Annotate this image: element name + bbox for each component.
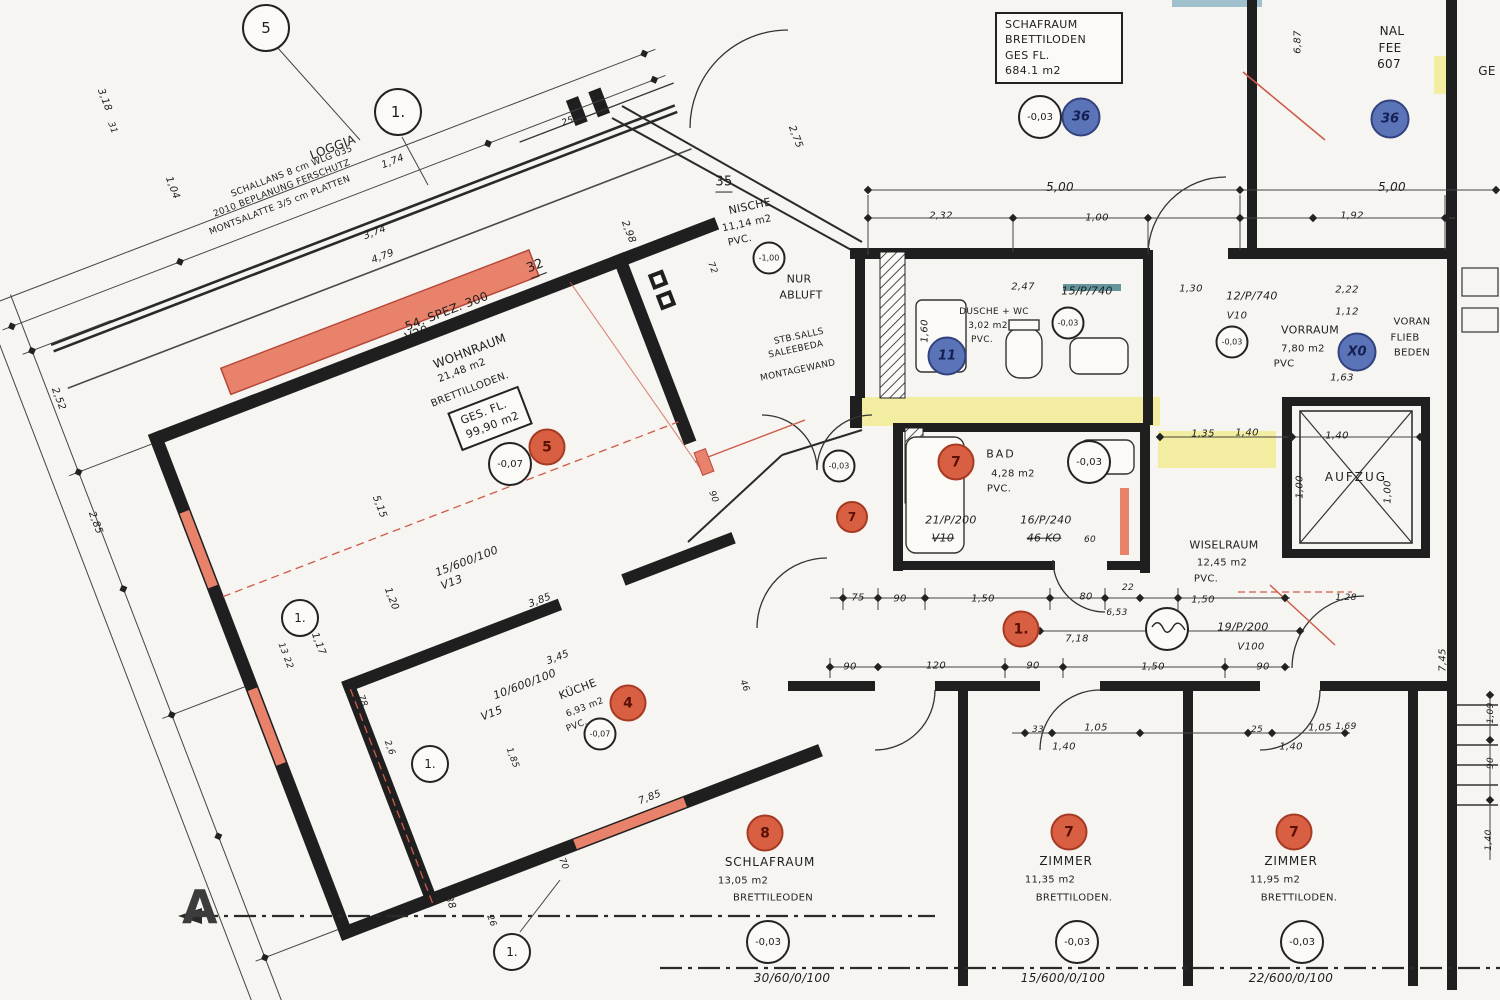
dim-top-1: 2,32 [929,210,952,222]
door-19-v100: V100 [1237,641,1264,653]
dim-1-12: 1,12 [1335,306,1358,318]
dim-lw-2: 1,40 [1052,741,1075,753]
dim-2-22: 2,22 [1335,284,1358,296]
dim-ct-0: 75 [851,592,864,604]
badge-red-8: 8 [747,815,784,852]
dim-60: 60 [1084,535,1096,545]
dim-lw-1: 1,05 [1084,722,1107,734]
dim-top-3: 1,92 [1340,210,1363,222]
room1-area: 13,05 m2 [718,875,768,887]
room1-name: SCHLAFRAUM [725,856,815,870]
dim-1-28: 1,28 [1335,593,1356,603]
voran-l3: BEDEN [1394,347,1430,359]
badge-red-7b: 7 [1051,814,1088,851]
door-21-v10: V10 [932,533,954,546]
hatch-pier-1 [880,252,905,398]
aufzug-dim-top: 1,40 [1325,430,1348,442]
door-21-p-200: 21/P/200 [925,515,976,528]
dim-ct-3: 80 [1079,591,1092,603]
room1-floor: BRETTILEODEN [733,892,813,904]
door-15-p-740: 15/P/740 [1061,286,1112,299]
schafraum-box-l3: GES FL. [1005,48,1113,63]
dim-lw-4: 1,40 [1279,741,1302,753]
grid-bubble-1d: 1. [493,933,531,971]
scribble-note-circle [1146,608,1188,650]
dim-6-53: 6,53 [1106,608,1127,618]
dim-cb-1: 120 [926,660,946,672]
vorraum-name: VORRAUM [1281,325,1339,338]
dim-ct-1: 90 [893,593,906,605]
door-19-p-200: 19/P/200 [1217,622,1268,635]
door-16-46ko: 46 KO [1027,533,1062,546]
dusche-l1: DUSCHE + WC [959,307,1029,317]
dim-ct-5: 1,50 [1191,594,1214,606]
bad-floor: PVC. [987,483,1011,495]
schafraum-box: SCHAFRAUM BRETTILODEN GES FL. 684.1 m2 [995,12,1123,84]
axis-room1: 30/60/0/100 [754,972,831,986]
schafraum-box-l4: 684.1 m2 [1005,63,1113,78]
dim-top-0: 5,00 [1046,181,1074,195]
axis-room3: 22/600/0/100 [1249,972,1333,986]
vorraum-floor: PVC [1274,358,1295,370]
elevation-schafraum: -0,03 [1018,95,1062,139]
dim-lw-0: 33 [1032,725,1044,735]
door-12-v10: V10 [1227,310,1247,322]
elevation-room2: -0,03 [1055,920,1099,964]
grid-bubble-5: 5 [242,4,290,52]
vorraum-area: 7,80 m2 [1281,343,1325,355]
elevation-room3: -0,03 [1280,920,1324,964]
topright-fragment: GE [1478,65,1495,79]
room3-floor: BRETTILODEN. [1261,892,1337,904]
room2-name: ZIMMER [1039,855,1092,869]
dim-cb-4: 90 [1256,661,1269,673]
dim-7-18: 7,18 [1065,633,1088,645]
elevation-kueche: -0,07 [584,718,617,751]
bad-area: 4,28 m2 [991,468,1035,480]
dim-top-4: 5,00 [1378,181,1406,195]
dim-cb-0: 90 [843,661,856,673]
window-number-35: 35 [715,176,732,193]
badge-red-7a: 7 [836,501,868,533]
grid-bubble-1c: 1. [411,745,449,783]
dim-2-47: 2,47 [1011,281,1034,293]
right-fixtures [1462,268,1498,332]
badge-blue-x0: X0 [1338,333,1377,372]
topright-l2: FEE [1379,42,1402,56]
dim-c2-0: 1,35 [1191,428,1214,440]
wisel-name: WISELRAUM [1189,540,1258,553]
badge-blue-11: 11 [928,337,967,376]
dim-cb-2: 90 [1026,660,1039,672]
dim-1-60: 1,60 [919,319,931,342]
badge-red-1: 1. [1003,611,1040,648]
room2-floor: BRETTILODEN. [1036,892,1112,904]
dim-c2-1: 1,40 [1235,427,1258,439]
elevation-corr: -0,03 [823,450,856,483]
topright-l1: NAL [1380,25,1405,39]
aufzug-name: AUFZUG [1325,471,1387,485]
badge-red-7-bad: 7 [938,444,975,481]
room2-area: 11,35 m2 [1025,874,1075,886]
dim-90r: 90 [1486,757,1496,769]
dim-1-69: 1,69 [1335,722,1356,732]
elevation-room1: -0,03 [746,920,790,964]
abluft-l2: ABLUFT [779,290,822,303]
badge-red-7c: 7 [1276,814,1313,851]
dim-1-09: 1,09 [1486,702,1496,723]
axis-room2: 15/600/0/100 [1021,972,1105,986]
dim-cb-3: 1,50 [1141,661,1164,673]
dusche-l3: PVC. [971,335,993,345]
floor-plan-sheet: 5 1. 1. 1. 1. A LOGGIA SCHALLANS 8 cm WL… [0,0,1500,1000]
axis-label-a: A [182,880,218,934]
wisel-floor: PVC. [1194,573,1218,585]
dim-1-30: 1,30 [1179,283,1202,295]
aufzug-dim-left: 1,00 [1294,475,1306,498]
grid-bubble-1a: 1. [374,88,422,136]
badge-blue-36a: 36 [1062,98,1101,137]
dim-top-2: 1,00 [1085,212,1108,224]
elevation-bad: -0,03 [1067,440,1111,484]
dim-1-40r: 1,40 [1484,829,1494,850]
door-16-p-240: 16/P/240 [1020,515,1071,528]
dusche-l2: 3,02 m2 [968,321,1008,331]
elevation-nische: -1,00 [753,242,786,275]
badge-red-4: 4 [610,685,647,722]
schafraum-box-l2: BRETTILODEN [1005,32,1113,47]
voran-l2: FLIEB [1391,332,1420,344]
plan-linework [0,0,1500,1000]
elevation-wohnraum: -0,07 [488,442,532,486]
door-12-p-740: 12/P/740 [1226,291,1277,304]
dim-1-63: 1,63 [1330,372,1353,384]
dim-ct-4: 22 [1122,583,1134,593]
dim-ct-2: 1,50 [971,593,994,605]
abluft-l1: NUR [787,274,812,287]
badge-red-5: 5 [529,429,566,466]
dim-lw-3: 25 [1251,725,1263,735]
grid-bubble-1b: 1. [281,599,319,637]
aufzug-dim-right: 1,00 [1382,480,1394,503]
elevation-door12: -0,03 [1216,326,1249,359]
elevation-door15: -0,03 [1052,307,1085,340]
room3-name: ZIMMER [1264,855,1317,869]
voran-l1: VORAN [1394,316,1431,328]
schafraum-box-l1: SCHAFRAUM [1005,17,1113,32]
wisel-area: 12,45 m2 [1197,557,1247,569]
topright-l3: 607 [1377,58,1401,72]
room3-area: 11,95 m2 [1250,874,1300,886]
dim-7-45: 7,45 [1437,648,1449,671]
bad-name: BAD [986,449,1016,462]
badge-blue-36b: 36 [1371,100,1410,139]
dim-6-87: 6,87 [1292,30,1304,53]
dim-lw-5: 1,05 [1308,722,1331,734]
